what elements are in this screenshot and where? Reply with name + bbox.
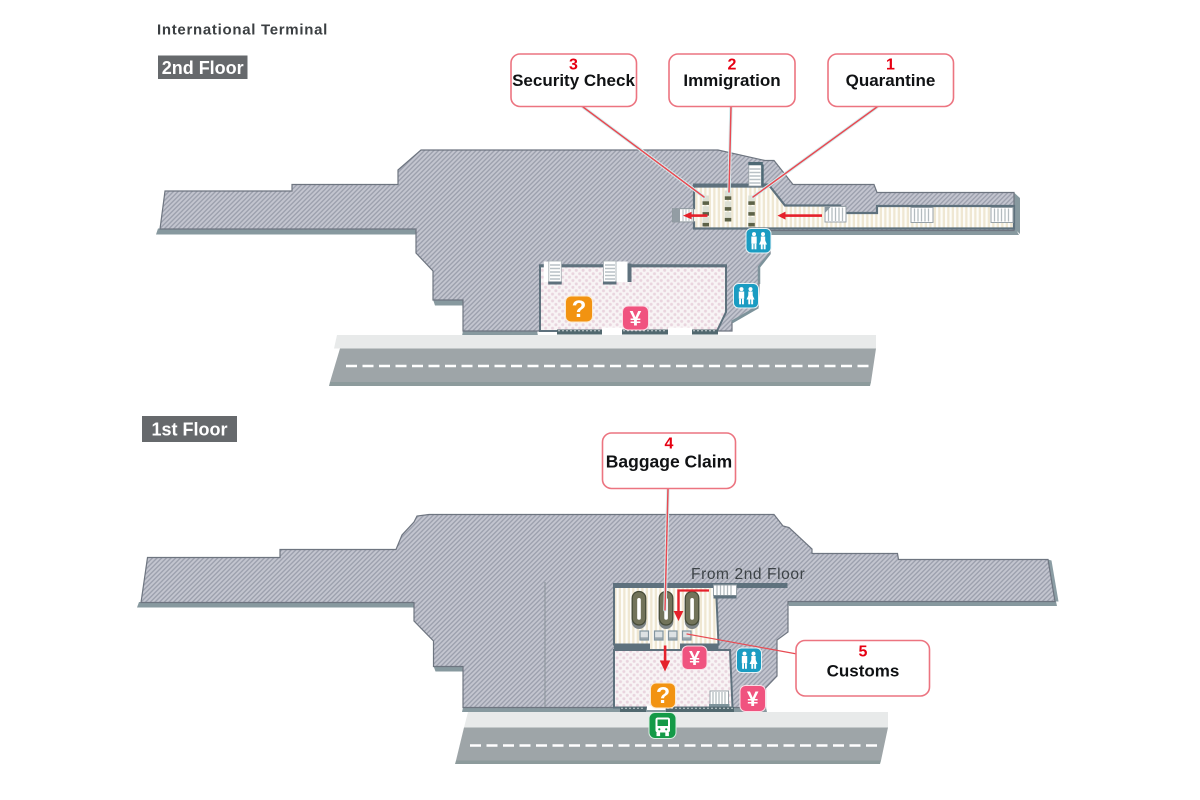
svg-text:4: 4 [665, 436, 674, 453]
svg-text:Customs: Customs [827, 662, 900, 681]
svg-text:5: 5 [859, 644, 868, 661]
svg-text:¥: ¥ [630, 308, 642, 331]
svg-text:Immigration: Immigration [683, 71, 780, 90]
svg-text:Quarantine: Quarantine [846, 71, 936, 90]
svg-text:?: ? [656, 682, 670, 708]
svg-text:2nd Floor: 2nd Floor [162, 58, 244, 78]
svg-text:International Terminal: International Terminal [157, 22, 328, 39]
svg-text:From 2nd Floor: From 2nd Floor [691, 566, 805, 583]
svg-text:1st Floor: 1st Floor [151, 420, 227, 440]
svg-text:Security Check: Security Check [512, 71, 635, 90]
svg-text:¥: ¥ [747, 688, 759, 711]
svg-text:Baggage Claim: Baggage Claim [606, 452, 732, 472]
svg-text:¥: ¥ [689, 648, 701, 670]
svg-text:?: ? [572, 296, 587, 323]
